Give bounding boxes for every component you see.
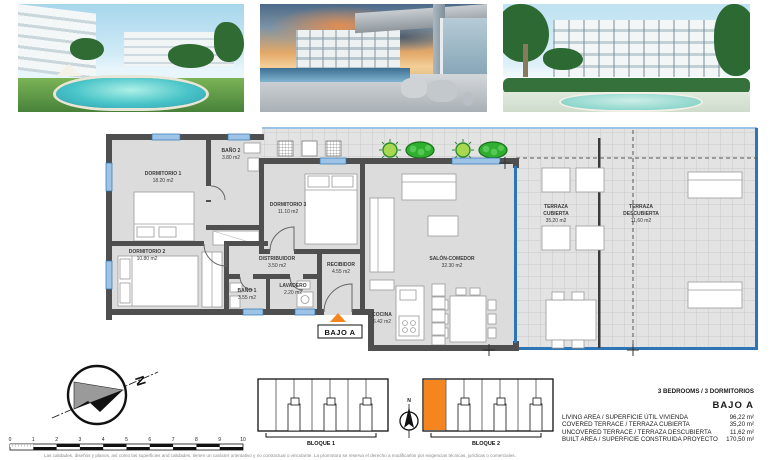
svg-text:3.80 m2: 3.80 m2	[222, 155, 240, 161]
block-1-label: BLOQUE 1	[307, 441, 335, 447]
room-label: TERRAZA	[629, 204, 653, 210]
scale-ticks: 0 1 2 3 4 5 6 7 8 9 10	[9, 437, 246, 443]
row-label: BUILT AREA / SUPERFICIE CONSTRUIDA PROYE…	[562, 436, 718, 443]
svg-text:7: 7	[172, 437, 175, 443]
svg-text:3.50 m2: 3.50 m2	[268, 263, 286, 269]
bush-icon	[406, 142, 434, 158]
svg-text:5: 5	[125, 437, 128, 443]
svg-text:3.55 m2: 3.55 m2	[238, 295, 256, 301]
svg-text:10.80 m2: 10.80 m2	[137, 256, 158, 262]
svg-text:35.20 m2: 35.20 m2	[546, 218, 567, 224]
svg-text:9: 9	[218, 437, 221, 443]
bedrooms-line: 3 BEDROOMS / 3 DORMITORIOS	[562, 388, 754, 395]
svg-text:4.55 m2: 4.55 m2	[332, 269, 350, 275]
svg-text:18.20 m2: 18.20 m2	[153, 178, 174, 184]
legal-disclaimer: Las calidades, diseños y planos, así com…	[44, 453, 750, 458]
scale-bar: 0 1 2 3 4 5 6 7 8 9 10	[9, 437, 246, 450]
svg-text:4: 4	[102, 437, 105, 443]
compass-rose: N	[52, 366, 158, 424]
svg-text:10: 10	[240, 437, 246, 443]
unit-label: BAJO A	[562, 400, 754, 411]
row-value: 170,50 m²	[726, 436, 754, 443]
room-label: BAÑO 2	[222, 147, 241, 154]
svg-text:11,60 m2: 11,60 m2	[631, 218, 652, 224]
svg-text:32.30 m2: 32.30 m2	[442, 263, 463, 269]
svg-text:2.20 m2: 2.20 m2	[284, 290, 302, 296]
room-label: TERRAZA	[544, 204, 568, 210]
svg-text:0: 0	[9, 437, 12, 443]
svg-text:3: 3	[79, 437, 82, 443]
room-label: SALÓN-COMEDOR	[429, 254, 475, 262]
svg-text:6: 6	[148, 437, 151, 443]
svg-text:6.42 m2: 6.42 m2	[373, 319, 391, 325]
bush-icon	[479, 142, 507, 158]
room-label: DORMITORIO 1	[145, 171, 182, 177]
table-row: COVERED TERRACE / TERRAZA CUBIERTA 35,20…	[562, 421, 754, 428]
svg-text:1: 1	[32, 437, 35, 443]
svg-text:CUBIERTA: CUBIERTA	[543, 211, 569, 217]
row-value: 96,22 m²	[730, 414, 754, 421]
room-label: COCINA	[372, 312, 392, 318]
block-2-diagram: BLOQUE 2	[423, 379, 553, 447]
block-1-diagram: BLOQUE 1	[258, 379, 388, 447]
entrance-marker: BAJO A	[318, 313, 362, 338]
room-label: BAÑO 1	[238, 287, 257, 294]
block-2-label: BLOQUE 2	[472, 441, 500, 447]
mini-compass: N	[400, 398, 418, 438]
room-label: DORMITORIO 2	[129, 249, 166, 255]
row-value: 35,20 m²	[730, 421, 754, 428]
room-label: DISTRIBUIDOR	[259, 256, 296, 262]
table-row: BUILT AREA / SUPERFICIE CONSTRUIDA PROYE…	[562, 436, 754, 443]
svg-text:11.10 m2: 11.10 m2	[278, 209, 299, 215]
table-row: LIVING AREA / SUPERFICIE ÚTIL VIVIENDA 9…	[562, 414, 754, 421]
svg-text:8: 8	[195, 437, 198, 443]
svg-text:DESCUBIERTA: DESCUBIERTA	[623, 211, 659, 217]
skylight	[302, 141, 317, 156]
unit-summary-table: 3 BEDROOMS / 3 DORMITORIOS BAJO A LIVING…	[562, 388, 754, 444]
row-label: LIVING AREA / SUPERFICIE ÚTIL VIVIENDA	[562, 414, 688, 421]
room-label: RECIBIDOR	[327, 262, 355, 268]
glass-wall-line	[514, 166, 517, 343]
room-label: DORMITORIO 3	[270, 202, 307, 208]
row-label: COVERED TERRACE / TERRAZA CUBIERTA	[562, 421, 690, 428]
vent-grille	[326, 141, 341, 156]
highlighted-unit	[424, 380, 446, 430]
room-label: LAVADERO	[279, 283, 306, 289]
vent-grille	[278, 141, 293, 156]
svg-text:2: 2	[55, 437, 58, 443]
north-label: N	[132, 374, 149, 388]
row-label: UNCOVERED TERRACE / TERRAZA DESCUBIERTA	[562, 429, 711, 436]
row-value: 11,62 m²	[730, 429, 754, 436]
table-row: UNCOVERED TERRACE / TERRAZA DESCUBIERTA …	[562, 429, 754, 436]
entrance-label: BAJO A	[324, 328, 355, 337]
north-label: N	[407, 398, 411, 404]
